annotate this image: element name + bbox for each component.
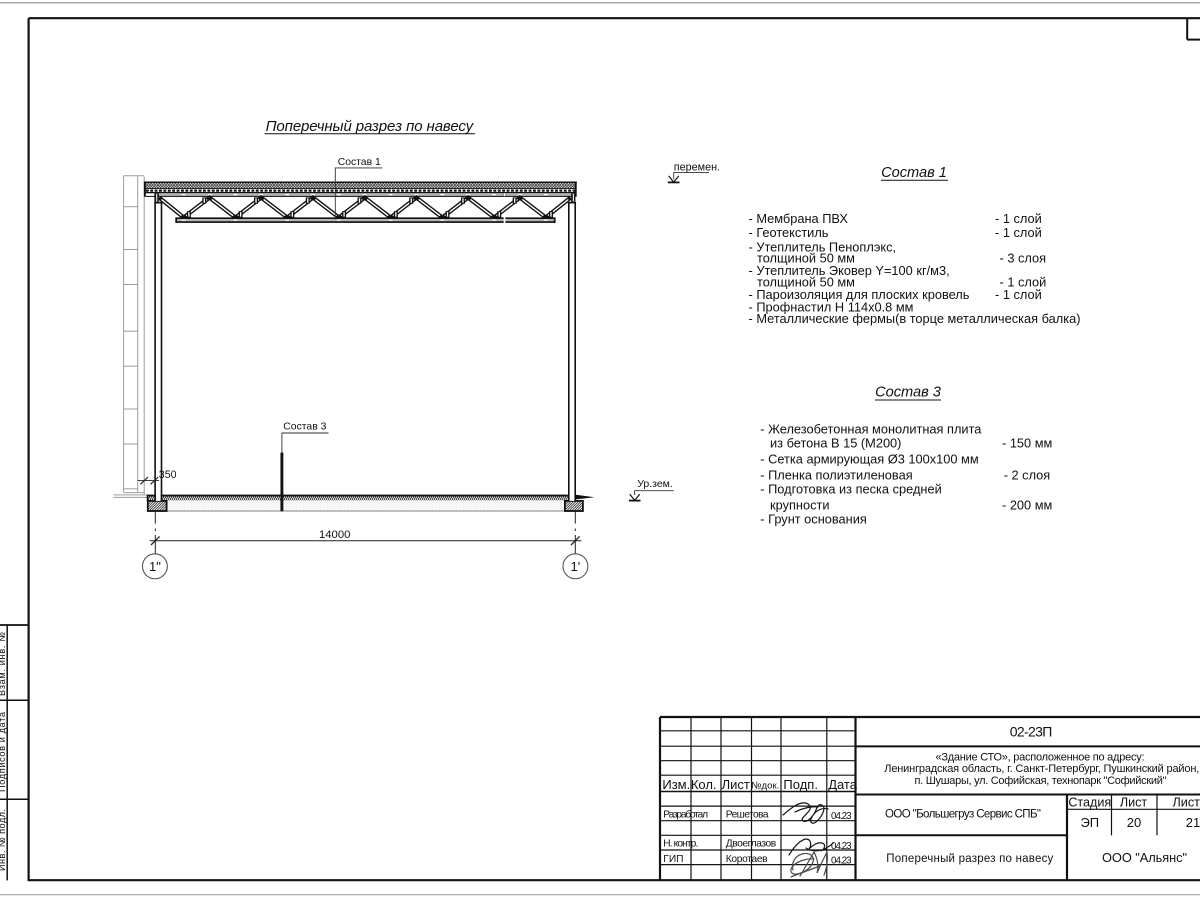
svg-text:Подп.: Подп. — [783, 777, 818, 792]
svg-text:350: 350 — [159, 469, 177, 481]
svg-text:Решетова: Решетова — [726, 810, 769, 821]
svg-text:из бетона В 15 (М200): из бетона В 15 (М200) — [770, 436, 901, 451]
svg-text:№док.: №док. — [751, 781, 779, 792]
svg-text:Лист: Лист — [1120, 795, 1148, 809]
svg-text:- Сетка армирующая Ø3 100х100: - Сетка армирующая Ø3 100х100 мм — [760, 452, 978, 467]
svg-text:Инв. № подл.: Инв. № подл. — [0, 809, 7, 871]
svg-text:04.23: 04.23 — [831, 841, 852, 852]
svg-text:крупности: крупности — [770, 497, 830, 512]
svg-text:- Мембрана ПВХ: - Мембрана ПВХ — [749, 211, 849, 226]
svg-text:- 1 слой: - 1 слой — [995, 211, 1042, 226]
svg-text:- Пленка полиэтиленовая: - Пленка полиэтиленовая — [760, 467, 912, 482]
svg-text:Подписов и дата: Подписов и дата — [0, 711, 7, 792]
svg-text:- Металлические фермы(в торце: - Металлические фермы(в торце металличес… — [749, 311, 1081, 326]
svg-text:- Геотекстиль: - Геотекстиль — [749, 225, 829, 240]
svg-text:1": 1" — [149, 559, 161, 574]
svg-text:Взам. инв. №: Взам. инв. № — [0, 632, 7, 696]
svg-text:Листов: Листов — [1173, 795, 1200, 809]
svg-text:1': 1' — [571, 559, 581, 574]
svg-text:- 2 слоя: - 2 слоя — [1004, 467, 1051, 482]
svg-text:Состав 1: Состав 1 — [338, 157, 381, 168]
svg-text:- Подготовка из песка средней: - Подготовка из песка средней — [760, 482, 941, 497]
svg-text:перемен.: перемен. — [674, 161, 720, 173]
svg-text:Состав 3: Состав 3 — [283, 421, 326, 432]
svg-text:- 150 мм: - 150 мм — [1002, 436, 1052, 451]
svg-text:Состав 3: Состав 3 — [875, 385, 941, 401]
svg-text:- 3 слоя: - 3 слоя — [1000, 251, 1047, 266]
svg-text:02-23П: 02-23П — [1010, 724, 1053, 740]
svg-text:- 1 слой: - 1 слой — [995, 287, 1042, 302]
svg-text:Коротаев: Коротаев — [726, 854, 768, 865]
svg-text:Ленинградская область, г. Санк: Ленинградская область, г. Санкт-Петербур… — [884, 763, 1199, 775]
svg-text:Поперечный разрез по навесу: Поперечный разрез по навесу — [266, 118, 475, 135]
svg-text:ООО "Альянс": ООО "Альянс" — [1102, 850, 1187, 865]
svg-text:Двоеглазов: Двоеглазов — [726, 839, 776, 850]
svg-text:Разработал: Разработал — [663, 809, 708, 821]
svg-text:п. Шушары, ул. Софийская, техн: п. Шушары, ул. Софийская, технопарк "Соф… — [915, 775, 1167, 787]
svg-text:Кол.: Кол. — [691, 777, 717, 792]
svg-text:Дата: Дата — [828, 777, 858, 792]
svg-text:Стадия: Стадия — [1068, 795, 1111, 809]
svg-text:20: 20 — [1127, 815, 1141, 830]
svg-text:ЭП: ЭП — [1080, 815, 1099, 830]
svg-text:Н. контр.: Н. контр. — [663, 839, 698, 850]
svg-text:04.23: 04.23 — [831, 855, 852, 866]
svg-text:«Здание СТО», расположенное по: «Здание СТО», расположенное по адресу: — [936, 751, 1145, 763]
svg-text:Изм.: Изм. — [662, 777, 690, 792]
svg-text:Ур.зем.: Ур.зем. — [637, 478, 673, 490]
svg-text:- Грунт основания: - Грунт основания — [760, 512, 867, 527]
svg-text:04.23: 04.23 — [831, 811, 852, 822]
svg-text:- 1 слой: - 1 слой — [995, 225, 1042, 240]
svg-text:- Железобетонная монолитная п: - Железобетонная монолитная плита — [760, 422, 982, 437]
svg-text:Состав 1: Состав 1 — [881, 165, 947, 181]
svg-text:21: 21 — [1186, 815, 1200, 830]
svg-text:Поперечный разрез по навесу: Поперечный разрез по навесу — [886, 853, 1053, 865]
svg-text:ГИП: ГИП — [663, 854, 683, 865]
svg-text:Лист: Лист — [722, 777, 750, 792]
svg-text:- 200 мм: - 200 мм — [1002, 497, 1052, 512]
svg-text:ООО "Большегруз Сервис СПБ": ООО "Большегруз Сервис СПБ" — [885, 809, 1041, 821]
svg-text:14000: 14000 — [319, 529, 350, 541]
